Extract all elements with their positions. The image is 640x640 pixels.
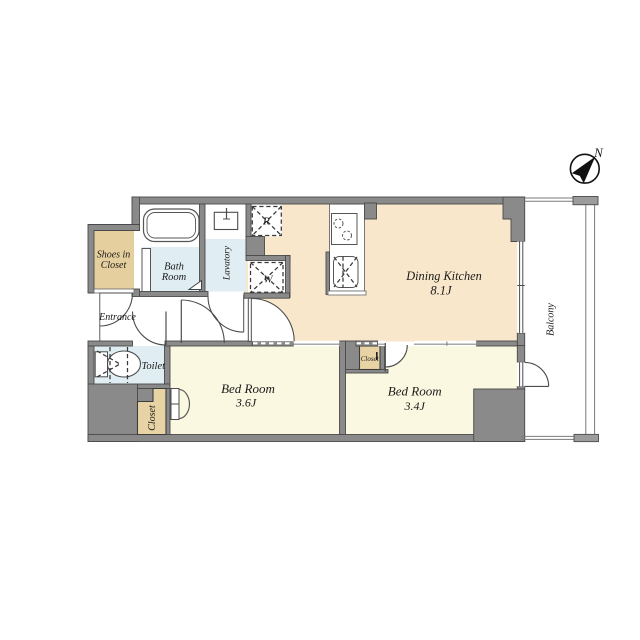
svg-text:Bath: Bath bbox=[164, 262, 184, 273]
svg-text:Balcony: Balcony bbox=[545, 303, 556, 336]
svg-text:Bed Room: Bed Room bbox=[388, 384, 442, 399]
svg-text:Bed Room: Bed Room bbox=[221, 381, 275, 396]
svg-text:Shoes in: Shoes in bbox=[97, 250, 131, 261]
svg-text:Closet: Closet bbox=[101, 260, 127, 271]
svg-text:Entrance: Entrance bbox=[98, 312, 136, 323]
svg-text:3.4J: 3.4J bbox=[404, 399, 426, 413]
svg-text:N: N bbox=[593, 145, 604, 160]
svg-text:8.1J: 8.1J bbox=[430, 284, 453, 298]
svg-text:Closet: Closet bbox=[147, 405, 158, 431]
svg-text:Closet: Closet bbox=[361, 355, 380, 363]
svg-text:3.6J: 3.6J bbox=[235, 396, 257, 410]
svg-text:W: W bbox=[263, 273, 273, 285]
svg-text:Dining Kitchen: Dining Kitchen bbox=[405, 269, 481, 283]
svg-text:R: R bbox=[262, 216, 270, 228]
svg-text:Lavatory: Lavatory bbox=[223, 245, 233, 281]
svg-text:Room: Room bbox=[161, 272, 187, 283]
svg-text:Toilet: Toilet bbox=[142, 361, 167, 372]
